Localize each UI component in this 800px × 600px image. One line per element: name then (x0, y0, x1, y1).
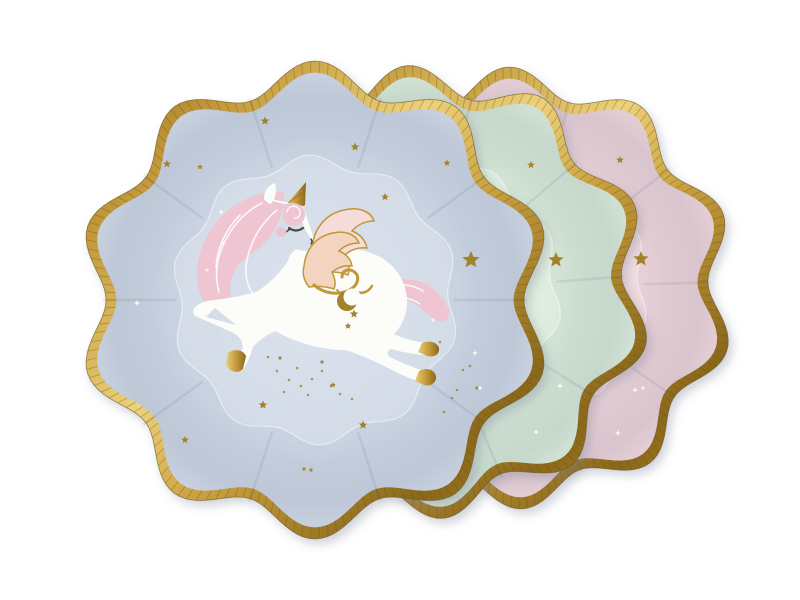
gold-speckle (288, 379, 291, 382)
unicorn-blush (276, 227, 287, 237)
product-photo (0, 0, 800, 600)
gold-speckle (443, 411, 446, 414)
plates-scene (0, 0, 800, 600)
gold-speckle (321, 370, 324, 373)
gold-speckle (469, 365, 472, 368)
gold-speckle (439, 341, 442, 344)
gold-speckle (296, 367, 299, 370)
gold-speckle (339, 393, 342, 396)
unicorn-front-hoof (226, 350, 246, 372)
gold-speckle (330, 385, 333, 388)
gold-speckle (300, 385, 303, 388)
gold-speckle (283, 391, 286, 394)
hip-moon-mask (344, 289, 361, 306)
gold-speckle (451, 397, 454, 400)
gold-speckle (462, 369, 465, 372)
gold-speckle (351, 398, 354, 401)
gold-speckle (307, 394, 310, 397)
gold-speckle (311, 378, 314, 381)
gold-speckle (267, 356, 270, 359)
gold-speckle (456, 389, 459, 392)
gold-speckle (276, 370, 279, 373)
